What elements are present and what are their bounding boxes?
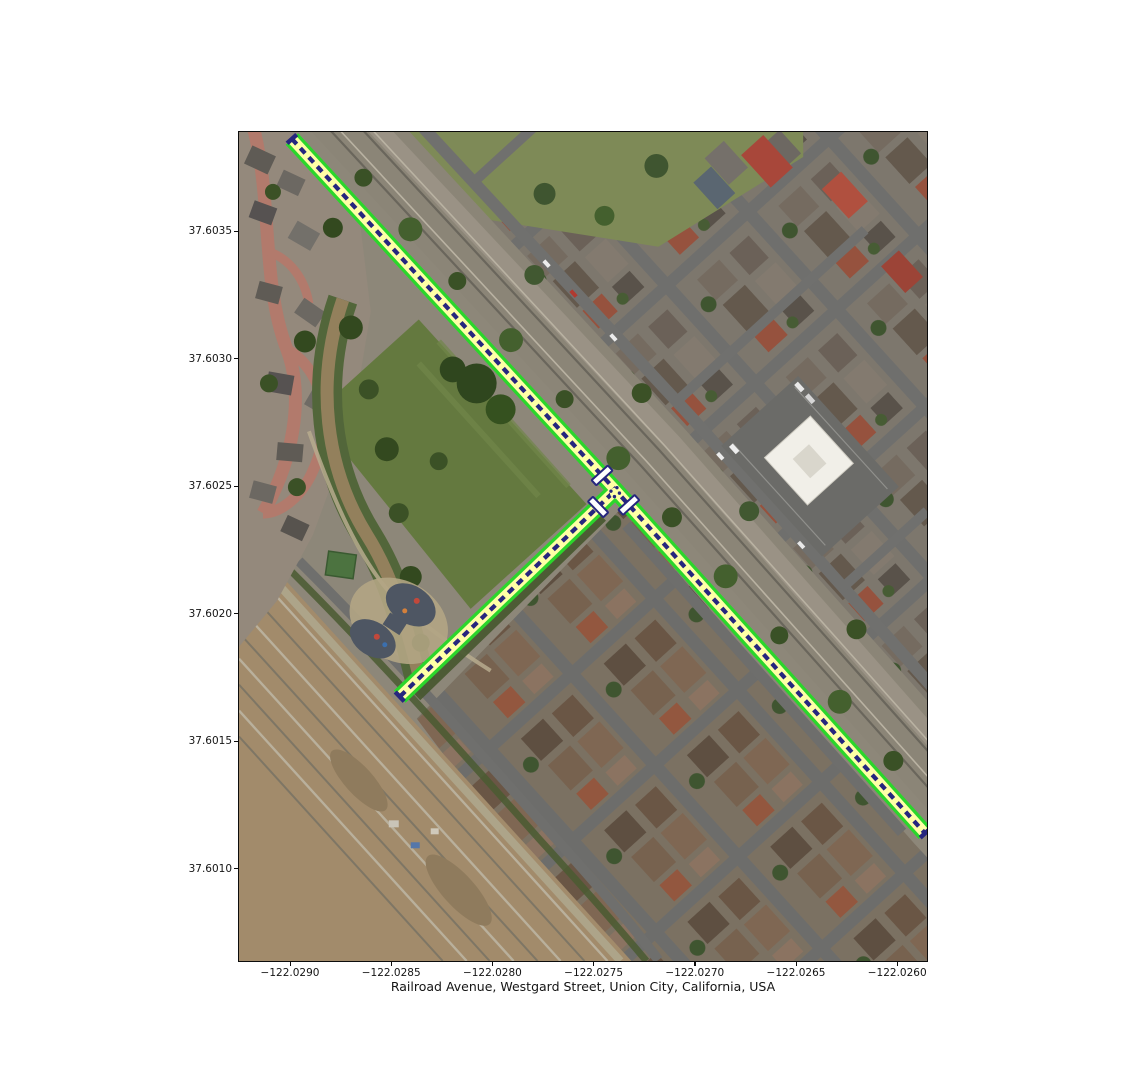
y-tick xyxy=(234,231,238,232)
screenshot-root: 37.6035 37.6030 37.6025 37.6020 37.6015 … xyxy=(0,0,1135,1080)
y-tick-label: 37.6010 xyxy=(144,862,232,876)
x-axis-label: Railroad Avenue, Westgard Street, Union … xyxy=(238,979,928,994)
satellite-basemap xyxy=(239,132,927,961)
x-tick-label: −122.0285 xyxy=(349,966,433,980)
park-pavilion xyxy=(325,551,356,579)
x-tick-label: −122.0260 xyxy=(855,966,939,980)
x-tick-label: −122.0265 xyxy=(754,966,838,980)
y-tick xyxy=(234,741,238,742)
y-tick xyxy=(234,486,238,487)
y-tick-label: 37.6035 xyxy=(144,224,232,238)
x-tick-label: −122.0270 xyxy=(653,966,737,980)
y-tick-label: 37.6015 xyxy=(144,734,232,748)
y-tick xyxy=(234,358,238,359)
y-tick xyxy=(234,868,238,869)
y-tick xyxy=(234,613,238,614)
y-tick-label: 37.6020 xyxy=(144,607,232,621)
x-tick-label: −122.0290 xyxy=(248,966,332,980)
map-axes xyxy=(238,131,928,962)
x-tick-label: −122.0275 xyxy=(552,966,636,980)
x-tick-label: −122.0280 xyxy=(450,966,534,980)
y-tick-label: 37.6025 xyxy=(144,479,232,493)
y-tick-label: 37.6030 xyxy=(144,352,232,366)
